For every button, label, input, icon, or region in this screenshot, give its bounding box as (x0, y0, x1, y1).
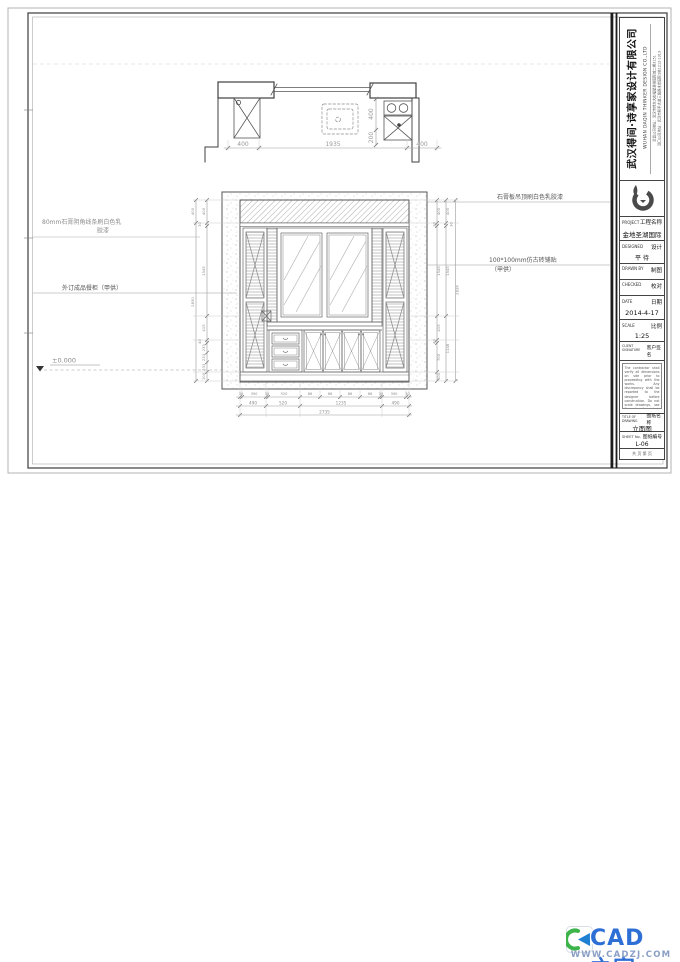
dim-label: 1545 (445, 266, 450, 276)
plan-sink-unit (384, 101, 412, 115)
title-block-border-bar (611, 13, 614, 468)
level-marker: ±0.000 (36, 357, 222, 372)
dim-label: 86 (308, 392, 313, 396)
drawn-label-en: DRAWN BY (622, 266, 643, 271)
dim-label: 415 (201, 324, 206, 332)
dim-label: 30 (265, 392, 270, 396)
dim-label: 233 (201, 353, 206, 361)
dim-label: 40 (197, 339, 202, 344)
dim-label: 1545 (436, 266, 441, 276)
dim-label: 400 (416, 141, 428, 148)
project-name: 金地圣湖国际 (620, 228, 664, 241)
dim-label: 390 (251, 392, 259, 396)
dim-label: 233 (201, 363, 206, 371)
designed-label-cn: 设计 (651, 243, 662, 251)
designed-value: 平 待 (620, 252, 664, 264)
project-label-en: PROJECT (622, 220, 639, 225)
dim-label: 30 (432, 222, 437, 227)
annotation-left-2: 外订成品餐柜（甲供） (62, 284, 122, 292)
date-value: 2014-4-17 (620, 307, 664, 320)
dim-label: 30 (405, 392, 410, 396)
dim-label: 700 (436, 353, 441, 361)
dim-label: 40 (432, 339, 437, 344)
dim-label: 30 (197, 222, 202, 227)
page-row: 共 页 第 页 (620, 449, 664, 459)
dim-label: 2836 (455, 285, 460, 295)
dim-label: 400 (436, 207, 441, 215)
dim-label: 490 (249, 400, 257, 405)
dim-label: 100 (436, 372, 441, 380)
plan-cabinet-left (234, 98, 260, 138)
company-name-en: WUHAN DAQIN THINKER DESIGN CO.,LTD (644, 19, 649, 177)
sheet-no-label-en: SHEET No. (622, 435, 641, 439)
plan-dimensions: 400 1935 400 400 200 (224, 97, 441, 150)
notes-cell: The contractor shall verify all dimensio… (620, 361, 664, 414)
dim-label: 400 (368, 108, 375, 120)
company-address-2: 汉口公司地址：武汉市和平大道三角路水岸国际2栋1212-1313 (657, 20, 662, 178)
dim-label: 30 (239, 392, 244, 396)
dim-label: 1235 (336, 400, 347, 405)
cad-drawing-canvas: 400 1935 400 400 200 (0, 0, 680, 481)
dim-label: 86 (348, 392, 353, 396)
fluted-pilaster-left (267, 228, 277, 322)
company-logo-icon (628, 183, 656, 213)
client-label-en: CLIENT SIGNATURE (622, 344, 647, 352)
client-label-cn: 客户签名 (647, 344, 662, 358)
dim-label: 200 (368, 132, 375, 144)
scale-value: 1:25 (620, 331, 664, 342)
dim-label: 400 (201, 207, 206, 215)
title-block-border-bar (616, 13, 618, 468)
scale-label-en: SCALE (622, 323, 635, 328)
dim-label: 30 (379, 392, 384, 396)
checked-label-en: CHECKED (622, 282, 641, 287)
dim-label: 400 (190, 207, 195, 215)
annotation-right-1: 石膏板吊顶刷白色乳胶漆 (497, 193, 563, 201)
level-label: ±0.000 (52, 357, 76, 365)
dim-label: 2735 (319, 409, 330, 414)
crown-molding (240, 223, 409, 227)
company-name-cn: 武汉得间·诗享家设计有限公司 (624, 20, 639, 178)
drawn-label-cn: 制图 (651, 266, 662, 274)
dim-label: 520 (279, 400, 287, 405)
dim-label: 86 (368, 392, 373, 396)
dim-label: 2830 (190, 297, 195, 307)
logo-cell (620, 180, 664, 217)
dim-label: 233 (201, 344, 206, 352)
plan-view: 400 1935 400 400 200 (205, 82, 441, 162)
crown-hatch-band (240, 200, 409, 223)
plan-walls (205, 82, 419, 162)
sheet-no-value: L-06 (620, 441, 664, 449)
dim-label: 400 (445, 207, 450, 215)
annotation-right-2: 100*100mm仿古砖铺贴 (489, 256, 557, 264)
scale-label-cn: 比例 (651, 322, 662, 330)
annotation-left-1b: 胶漆 (97, 227, 109, 235)
dim-label: 1935 (325, 141, 340, 148)
dim-label: 415 (436, 324, 441, 332)
plan-cabinet-right (384, 116, 412, 140)
drawing-sheet: 400 1935 400 400 200 (0, 0, 680, 481)
designed-label-en: DESIGNED (622, 244, 643, 249)
annotation-left-1: 80mm石膏阴角线条刷白色乳 (42, 218, 121, 226)
dim-label: 86 (328, 392, 333, 396)
dim-label: 1148 (445, 343, 450, 353)
elevation-view: 400 30 1545 415 40 233 233 233 100 400 2… (190, 192, 460, 417)
annotation-right-2b: （甲供） (491, 266, 515, 274)
plan-island-dashed (322, 104, 358, 134)
dim-label: 100 (201, 372, 206, 380)
fluted-pilaster-right (372, 228, 382, 322)
cadzj-logo-icon (566, 926, 593, 953)
dim-label: 520 (281, 392, 289, 396)
company-block: 武汉得间·诗享家设计有限公司 WUHAN DAQIN THINKER DESIG… (620, 18, 664, 181)
dim-label: 30 (449, 222, 454, 227)
dim-label: 390 (391, 392, 399, 396)
drawing-title-value: 立面图 (620, 424, 664, 432)
sheet-no-label-cn: 图纸编号 (643, 433, 662, 440)
project-label-cn: 工程名称 (640, 218, 662, 226)
date-label-en: DATE (622, 299, 632, 304)
dim-label: 490 (392, 400, 400, 405)
dim-label: 400 (237, 141, 249, 148)
plan-beam (271, 84, 373, 95)
title-block: 武汉得间·诗享家设计有限公司 WUHAN DAQIN THINKER DESIG… (619, 17, 665, 460)
date-label-cn: 日期 (651, 298, 662, 306)
checked-label-cn: 校对 (651, 282, 662, 290)
dim-label: 1545 (201, 266, 206, 276)
watermark-url[interactable]: WWW.CADZJ.COM (566, 950, 676, 960)
notes-en: The contractor shall verify all dimensio… (625, 366, 660, 410)
